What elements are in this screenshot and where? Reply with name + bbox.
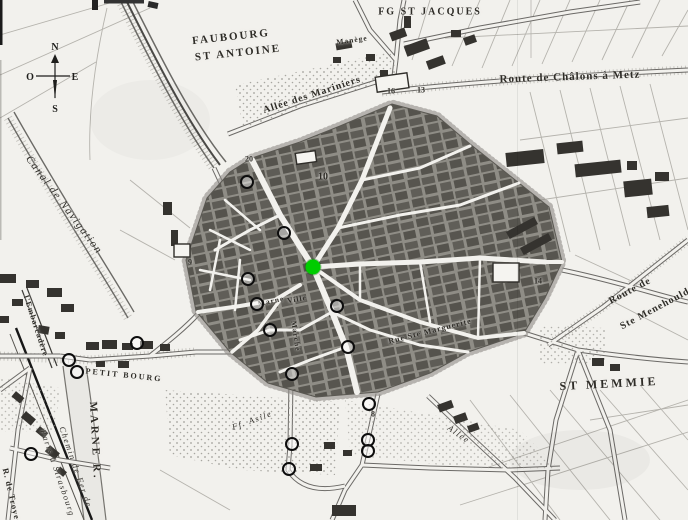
map-label-r-de-troyes: R. de Troyes (1, 467, 24, 520)
map-label-rue-ste-marguerite: Rue Ste Marguerite (387, 316, 472, 345)
annotation-circle-marker-15[interactable] (361, 444, 375, 458)
annotation-circle-marker-1[interactable] (240, 175, 254, 189)
map-label-embarcadere: l'Embarcadère (22, 294, 50, 357)
annotation-circle-marker-7[interactable] (341, 340, 355, 354)
map-label-marne-r: Marne R. (87, 401, 103, 481)
annotation-circle-marker-6[interactable] (330, 299, 344, 313)
map-label-ville-street: Ville (287, 293, 308, 305)
map-label-num-9: 9 (188, 258, 192, 267)
annotation-circle-marker-2[interactable] (277, 226, 291, 240)
annotation-circle-marker-8[interactable] (285, 367, 299, 381)
annotation-circle-marker-11[interactable] (70, 365, 84, 379)
map-label-petit-bourg: Petit Bourg (85, 366, 163, 383)
annotation-layer: FaubourgSt AntoineFg St JacquesRoute de … (0, 0, 688, 520)
selected-location-green-dot[interactable] (306, 260, 321, 275)
historical-map-screenshot: N O E S FaubourgSt AntoineFg St JacquesR… (0, 0, 688, 520)
annotation-circle-marker-5[interactable] (263, 323, 277, 337)
map-label-marche-street: Marché (289, 320, 302, 352)
map-label-fg-st-jacques: Fg St Jacques (378, 7, 482, 18)
annotation-circle-marker-3[interactable] (241, 272, 255, 286)
annotation-circle-marker-12[interactable] (24, 447, 38, 461)
annotation-circle-marker-13[interactable] (362, 397, 376, 411)
map-label-num-13: 13 (417, 86, 425, 95)
map-label-num-14: 14 (534, 277, 542, 286)
map-label-allee-mariniers: Allée des Mariniers (262, 74, 363, 116)
annotation-circle-marker-16[interactable] (285, 437, 299, 451)
map-label-num-10: 10 (318, 172, 328, 183)
annotation-circle-marker-4[interactable] (250, 297, 264, 311)
map-label-num-8: 8 (371, 410, 375, 419)
annotation-circle-marker-9[interactable] (130, 336, 144, 350)
map-label-route-chalons-metz: Route de Châlons à Metz (499, 69, 640, 86)
map-label-canal-navigation: Canal de Navigation (23, 153, 105, 256)
map-label-faubourg-line2: St Antoine (194, 43, 281, 64)
annotation-circle-marker-17[interactable] (282, 462, 296, 476)
map-label-route-de: Route de (607, 275, 653, 306)
map-label-allee: Allée (446, 423, 472, 446)
map-label-ff-asile: Ff. Asile (230, 408, 273, 432)
map-label-num-16: 16 (387, 87, 395, 96)
map-label-st-memmie: St Memmie (559, 374, 659, 394)
map-label-manege: Manège (336, 33, 368, 46)
map-label-num-20: 20 (245, 155, 253, 164)
